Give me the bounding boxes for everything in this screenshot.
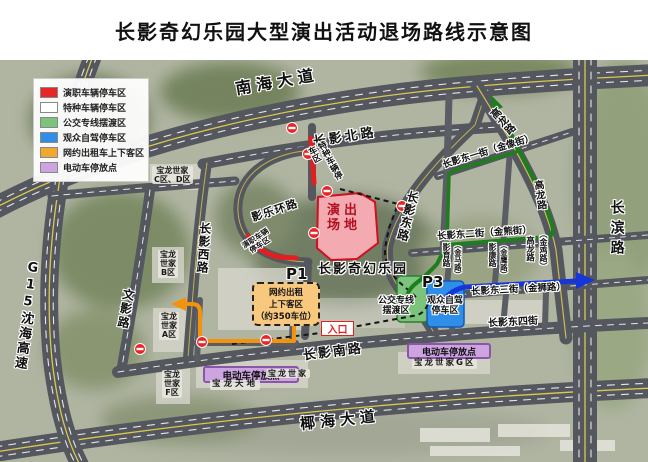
no-entry-icon: [309, 228, 320, 239]
legend: 演职车辆停车区 特种车辆停车区 公交专线摆渡区 观众自驾停车区 网约出租车上下客…: [33, 78, 149, 182]
road-label-jinying: （金鹰路）: [499, 241, 507, 279]
no-entry-icon: [261, 335, 272, 346]
legend-label: 特种车辆停车区: [63, 101, 126, 114]
road-label-jinji: （金鸡路）: [538, 230, 547, 270]
block-label-b: 宝龙 世家 B区: [158, 250, 178, 278]
rideshare-zone-box: 网约出租 上下客区 （约350车位）: [252, 282, 320, 326]
road-label-yingyu: 影育路: [441, 243, 450, 267]
legend-item: 观众自驾停车区: [40, 131, 142, 144]
legend-swatch-rideshare: [40, 147, 58, 158]
legend-item: 电动车停放点: [40, 161, 142, 174]
title-bar: 长影奇幻乐园大型演出活动退场路线示意图: [0, 0, 648, 60]
legend-label: 观众自驾停车区: [63, 131, 126, 144]
legend-swatch-special: [40, 102, 58, 113]
road-label-changying-west: 长影西路: [194, 222, 211, 275]
park-label: 长影奇幻乐园: [318, 263, 408, 278]
no-entry-icon: [135, 344, 146, 355]
legend-label: 公交专线摆渡区: [63, 116, 126, 129]
legend-swatch-staff: [40, 87, 58, 98]
page-title: 长影奇幻乐园大型演出活动退场路线示意图: [115, 16, 533, 45]
legend-swatch-selfdrive: [40, 132, 58, 143]
road-label-gaolong-south: 高龙路: [524, 236, 534, 262]
block-label-g: 宝龙世家G区: [412, 359, 477, 369]
self-drive-zone-label: 观众自驾 停车区: [427, 296, 463, 316]
entrance-label: 入口: [321, 321, 354, 336]
ebike-parking-box: 电动车停放点: [407, 343, 491, 359]
legend-item: 特种车辆停车区: [40, 101, 142, 114]
road-label-changbin: 长滨路: [608, 200, 624, 260]
legend-label: 演职车辆停车区: [63, 86, 126, 99]
map-canvas: 演职车辆停车区 特种车辆停车区 公交专线摆渡区 观众自驾停车区 网约出租车上下客…: [0, 60, 648, 462]
legend-label: 电动车停放点: [63, 161, 117, 174]
no-entry-icon: [197, 337, 208, 348]
p1-label: P1: [286, 266, 307, 283]
legend-swatch-bus: [40, 117, 58, 128]
road-changbin-road: [579, 60, 591, 462]
legend-item: 演职车辆停车区: [40, 86, 142, 99]
venue-label: 演出 场地: [320, 204, 368, 233]
block-label-a: 宝龙 世家 A区: [159, 312, 179, 340]
bus-zone-label: 公交专线 摆渡区: [378, 296, 414, 316]
no-entry-icon: [287, 123, 298, 134]
block-label-f: 宝龙 世家 F区: [162, 370, 182, 398]
route-map-screenshot: 长影奇幻乐园大型演出活动退场路线示意图: [0, 0, 648, 462]
legend-label: 网约出租车上下客区: [63, 146, 144, 159]
road-label-jinma: （金马路）: [453, 241, 461, 279]
legend-swatch-ebike: [40, 162, 58, 173]
p3-label: P3: [422, 274, 443, 291]
legend-item: 公交专线摆渡区: [40, 116, 142, 129]
legend-item: 网约出租车上下客区: [40, 146, 142, 159]
block-label-cd: 宝龙世家 C区、D区: [152, 166, 193, 184]
block-label-tiandi: 宝龙天地: [210, 380, 260, 390]
block-label-shijia: 宝龙世家: [266, 369, 310, 378]
road-label-yingkang: 影康路: [487, 243, 496, 267]
